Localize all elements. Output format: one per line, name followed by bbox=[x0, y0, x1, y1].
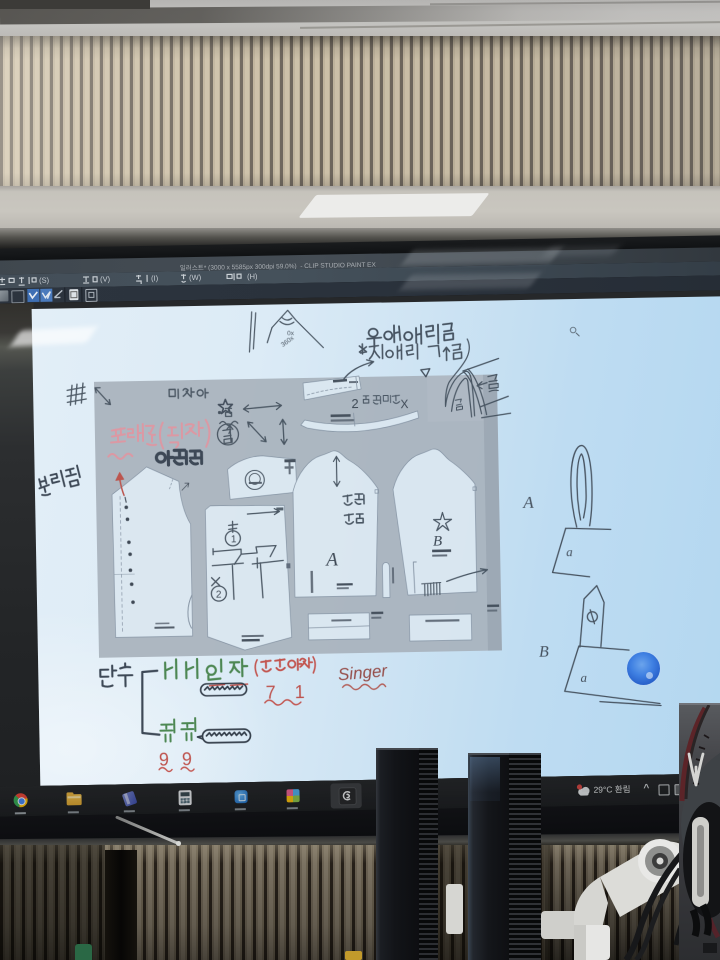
svg-text:(S): (S) bbox=[39, 276, 50, 285]
svg-text:(W): (W) bbox=[189, 273, 202, 282]
svg-text:2: 2 bbox=[351, 396, 359, 411]
svg-text:Singer: Singer bbox=[337, 661, 389, 684]
svg-text:X: X bbox=[400, 397, 408, 411]
svg-text:(H): (H) bbox=[247, 272, 258, 281]
svg-text:A: A bbox=[324, 549, 338, 570]
svg-text:a: a bbox=[580, 670, 587, 685]
svg-text:9 9: 9 9 bbox=[159, 749, 196, 770]
svg-text:a: a bbox=[566, 544, 573, 559]
svg-text:B: B bbox=[433, 533, 442, 549]
svg-text:(I): (I) bbox=[151, 274, 159, 283]
svg-text:2: 2 bbox=[216, 590, 222, 601]
svg-text:B: B bbox=[539, 644, 549, 661]
svg-text:1: 1 bbox=[231, 534, 237, 545]
svg-text:A: A bbox=[522, 493, 534, 512]
svg-text:(V): (V) bbox=[100, 275, 111, 284]
